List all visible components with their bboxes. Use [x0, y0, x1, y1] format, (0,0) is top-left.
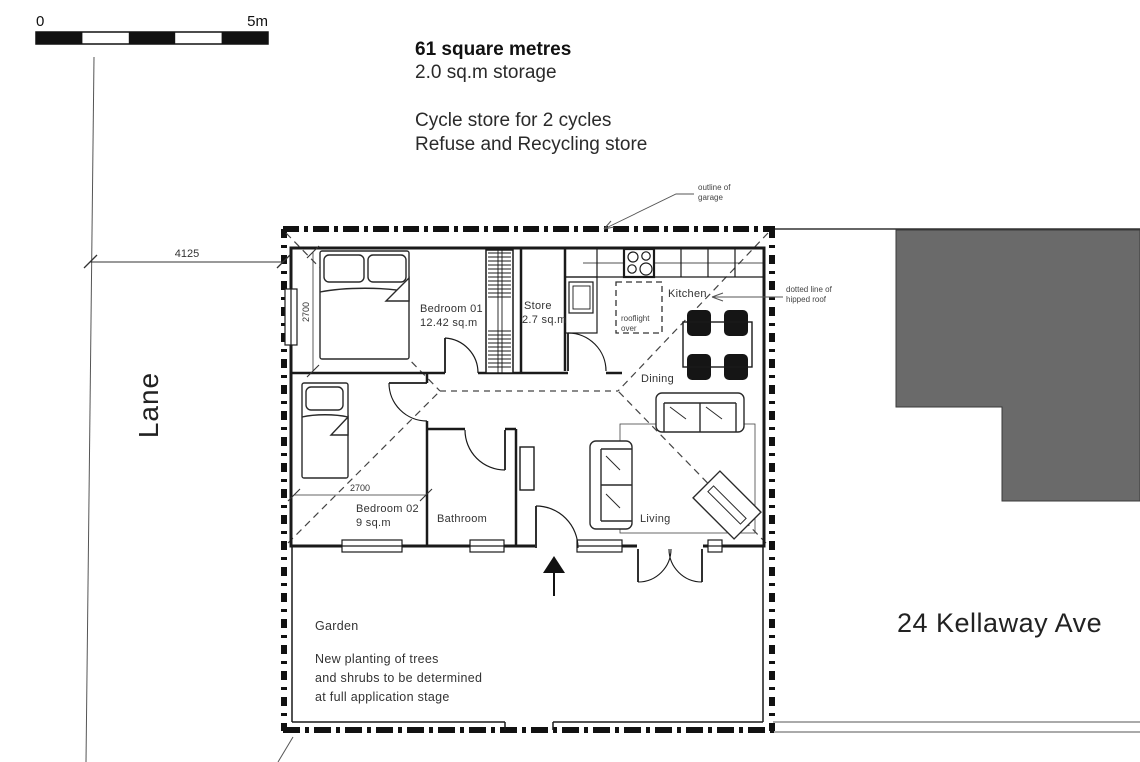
- site-context-lines: [86, 57, 1140, 762]
- label-store: Store: [524, 300, 552, 312]
- corner-stove-unit: [693, 471, 761, 539]
- note-refuse-store: Refuse and Recycling store: [415, 134, 647, 155]
- window-living-bottom: [708, 540, 722, 552]
- hob-burner-4: [640, 263, 652, 275]
- roof-label-2: hipped roof: [786, 295, 827, 304]
- dim-4125-label: 4125: [175, 248, 199, 260]
- entrance-opening: [535, 541, 579, 551]
- label-bathroom: Bathroom: [437, 513, 487, 525]
- wardrobe: [486, 250, 513, 373]
- label-dining: Dining: [641, 373, 674, 385]
- bedroom01-bed: [320, 251, 409, 359]
- label-garden: Garden: [315, 619, 359, 633]
- scale-bar: 0 5m: [36, 13, 268, 44]
- bedroom02-bed: [302, 383, 348, 478]
- note-cycle-store: Cycle store for 2 cycles: [415, 110, 611, 131]
- dim-2700-b2-label: 2700: [350, 483, 370, 493]
- sink-cabinet: [565, 277, 597, 333]
- sofa-horizontal: [656, 393, 744, 432]
- rooflight-label-2: over: [621, 324, 637, 333]
- rooflight-label-1: rooflight: [621, 314, 650, 323]
- garage-label-2: garage: [698, 193, 723, 202]
- door-bedroom02: [389, 383, 427, 421]
- window-bathroom-bottom: [470, 540, 504, 552]
- label-store-area: 2.7 sq.m: [522, 314, 567, 326]
- hob-burner-1: [628, 252, 638, 262]
- door-bedroom01: [445, 338, 478, 373]
- garage-label-1: outline of: [698, 183, 731, 192]
- garden-note-1: New planting of trees: [315, 652, 439, 666]
- pillow-2: [368, 255, 406, 282]
- dim-2700-b1-label: 2700: [301, 302, 311, 322]
- dimension-bedroom02-2700: 2700: [288, 483, 432, 501]
- label-bedroom01: Bedroom 01: [420, 303, 483, 315]
- sink-basin: [573, 286, 590, 309]
- door-bathroom: [465, 430, 505, 470]
- scale-5m-label: 5m: [247, 13, 268, 30]
- note-area: 61 square metres: [415, 39, 571, 60]
- label-neighbor-address: 24 Kellaway Ave: [897, 608, 1102, 638]
- entrance-arrow: [543, 556, 565, 596]
- bathroom-cupboard: [520, 447, 534, 490]
- dimension-bedroom01-2700: 2700: [301, 246, 319, 377]
- french-door-opening: [637, 541, 703, 551]
- hob-burner-3: [628, 265, 636, 273]
- rooflight: rooflight over: [616, 282, 662, 333]
- garden-labels: Garden New planting of trees and shrubs …: [315, 619, 482, 704]
- sofa-vertical: [590, 441, 632, 529]
- label-bedroom02: Bedroom 02: [356, 503, 419, 515]
- dimension-4125: 4125: [84, 248, 290, 268]
- garage-leader-line: [604, 194, 694, 229]
- dining-set: [683, 310, 752, 380]
- roof-label-1: dotted line of: [786, 285, 833, 294]
- label-lane: Lane: [133, 372, 164, 438]
- hob-burner-2: [642, 252, 650, 260]
- label-living: Living: [640, 513, 671, 525]
- window-hall-bottom: [577, 540, 622, 552]
- window-bedroom02-bottom: [342, 540, 402, 552]
- annotation-outline-of-garage: outline of garage: [604, 183, 731, 229]
- plan-drawing: 0 5m 61 square metres 2.0 sq.m storage C…: [0, 0, 1140, 762]
- lane-corner-line: [278, 737, 293, 762]
- floor-plan-sheet: 0 5m 61 square metres 2.0 sq.m storage C…: [0, 0, 1140, 762]
- garden-note-3: at full application stage: [315, 690, 450, 704]
- notes-block: 61 square metres 2.0 sq.m storage Cycle …: [415, 39, 647, 155]
- note-storage: 2.0 sq.m storage: [415, 62, 557, 83]
- neighbor-building-24-kellaway: [896, 230, 1140, 501]
- label-bedroom01-area: 12.42 sq.m: [420, 317, 477, 329]
- pillow-1: [324, 255, 364, 282]
- french-doors: [638, 549, 702, 582]
- label-bedroom02-area: 9 sq.m: [356, 517, 391, 529]
- scale-zero-label: 0: [36, 13, 44, 30]
- dining-chair-1: [687, 310, 711, 336]
- pillow-single: [306, 387, 343, 410]
- window-bedroom01-left: [285, 289, 297, 345]
- lane-edge-line: [86, 57, 94, 762]
- garden-note-2: and shrubs to be determined: [315, 671, 482, 685]
- door-kitchen: [568, 333, 606, 371]
- dining-chair-2: [724, 310, 748, 336]
- label-kitchen: Kitchen: [668, 288, 707, 300]
